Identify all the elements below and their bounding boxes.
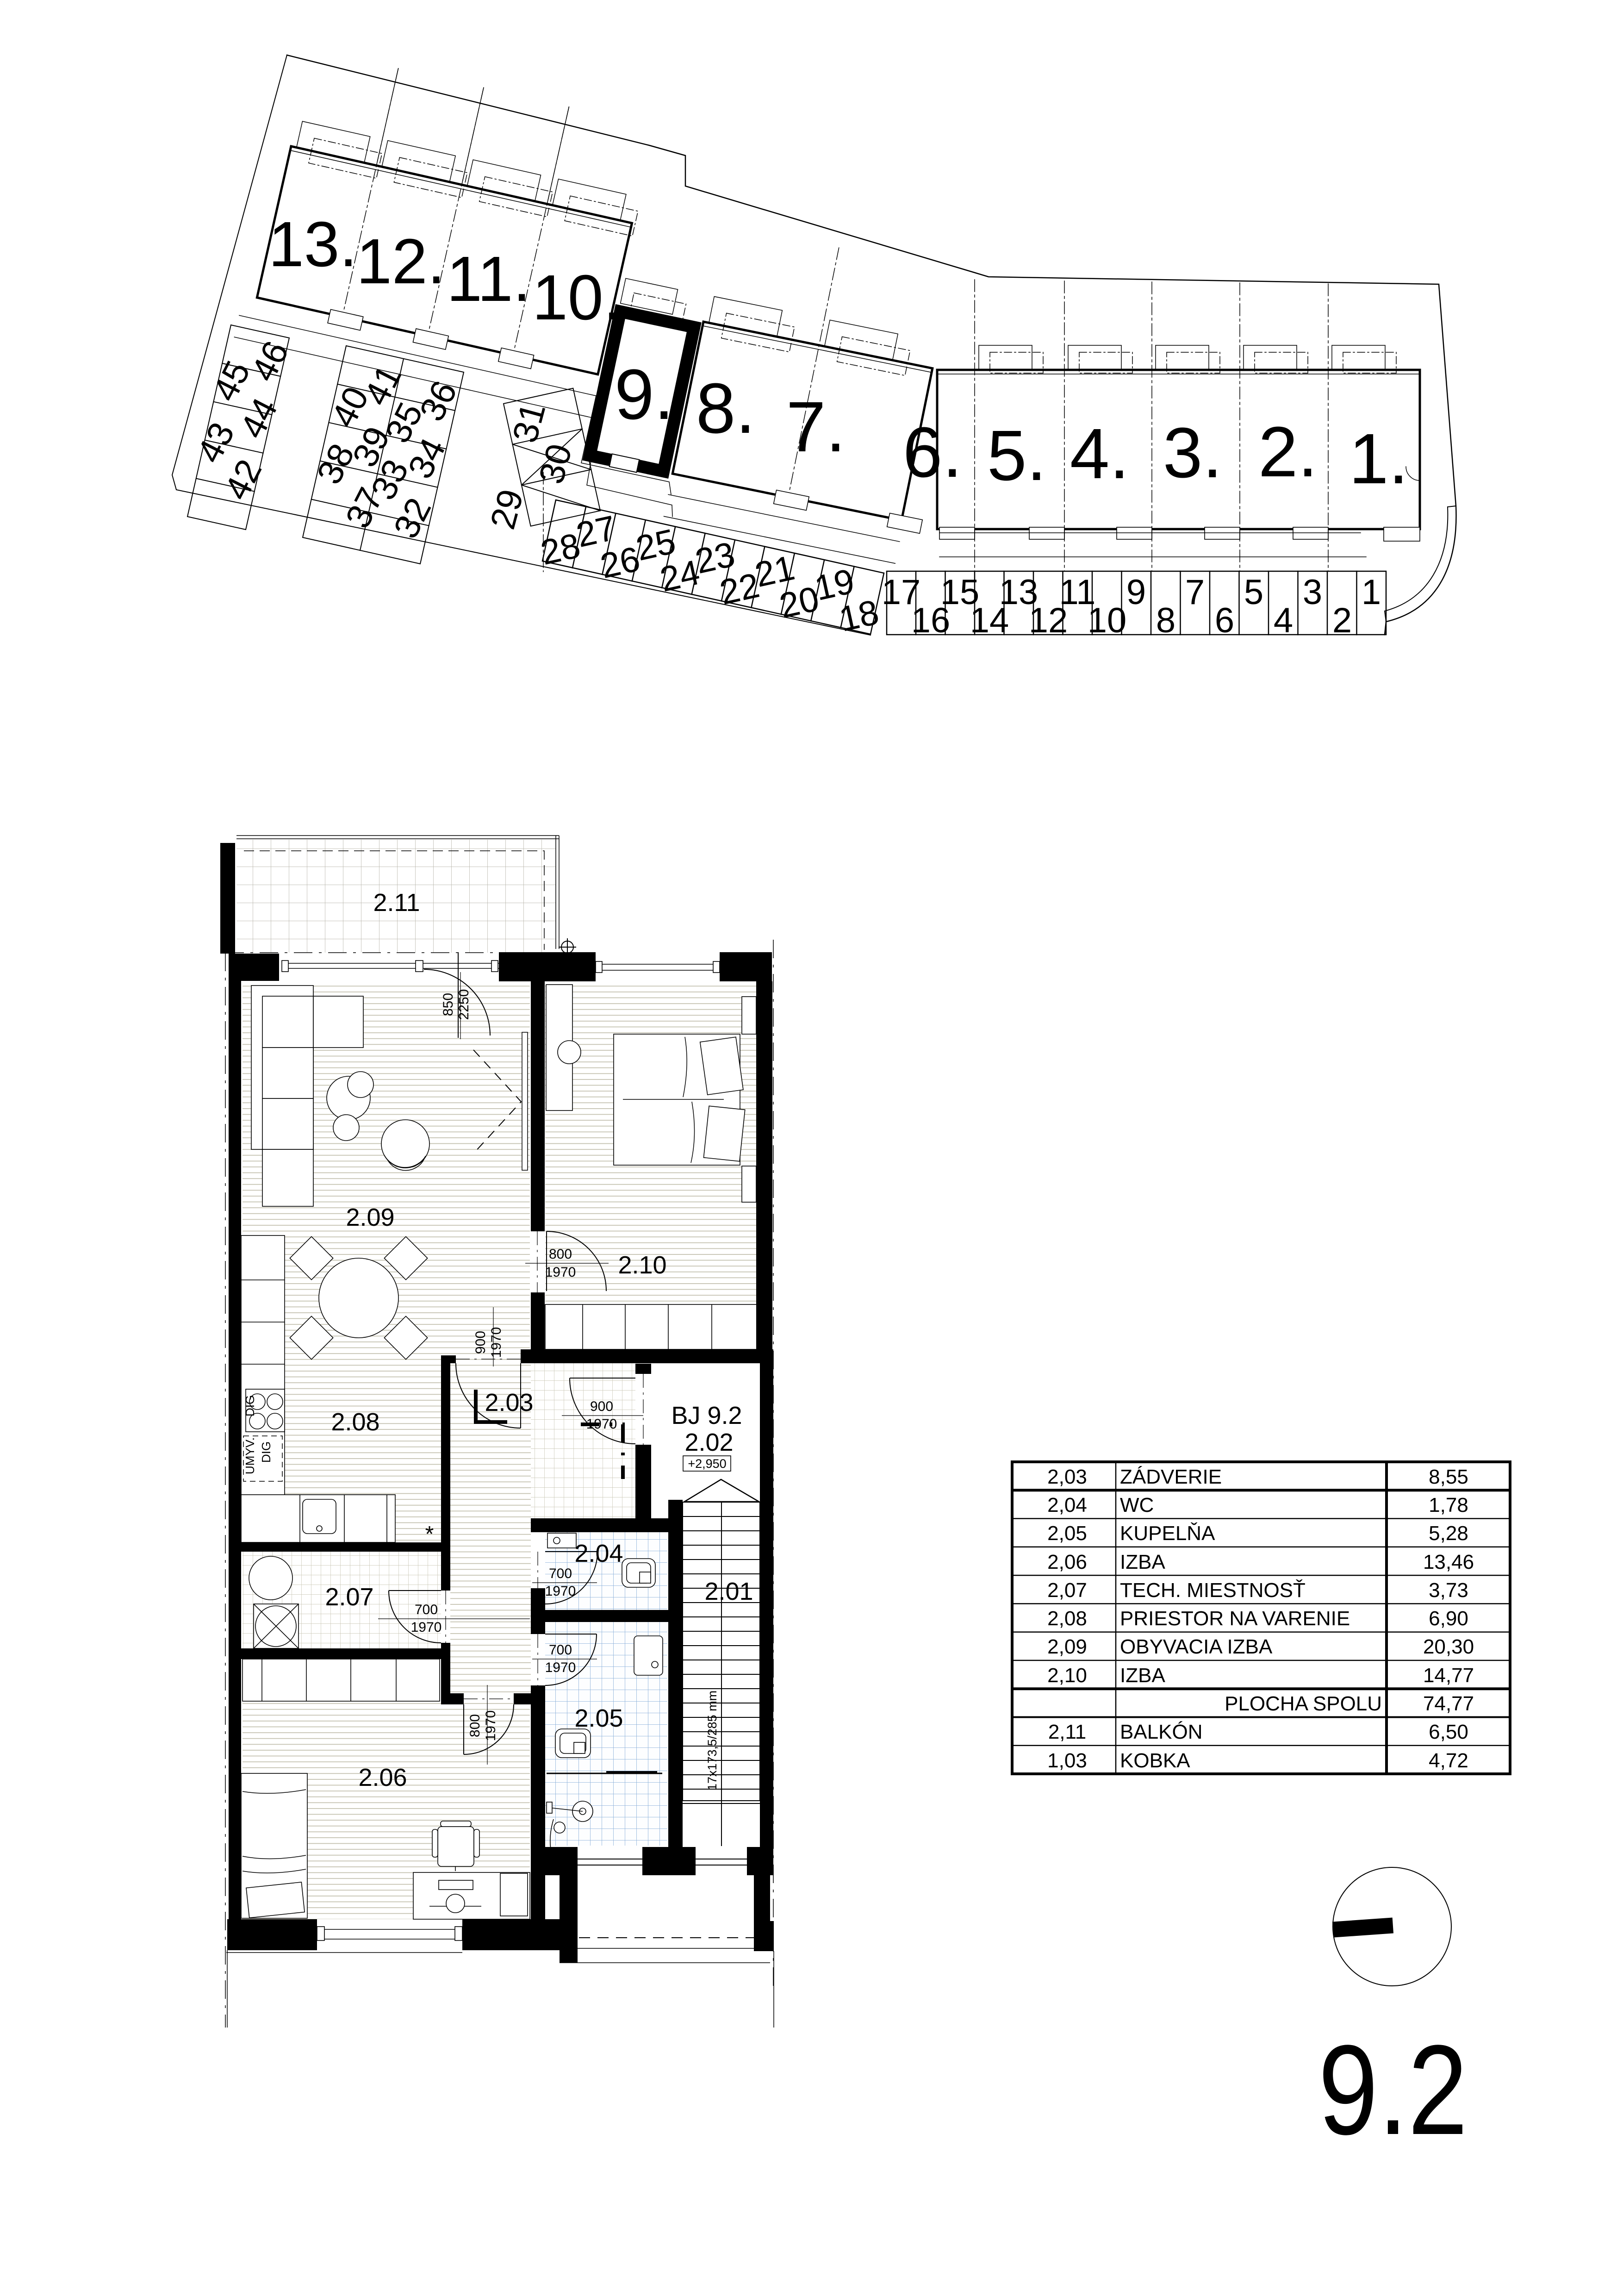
svg-text:1,03: 1,03 <box>1047 1749 1087 1772</box>
svg-text:12.: 12. <box>356 226 445 297</box>
svg-text:2.04: 2.04 <box>574 1540 623 1567</box>
svg-text:8: 8 <box>1156 601 1175 640</box>
svg-text:2.11: 2.11 <box>373 889 420 917</box>
svg-text:700: 700 <box>415 1602 438 1617</box>
svg-text:17: 17 <box>882 573 921 612</box>
svg-text:TECH. MIESTNOSŤ: TECH. MIESTNOSŤ <box>1120 1579 1306 1602</box>
svg-text:850: 850 <box>441 993 456 1016</box>
svg-text:2.07: 2.07 <box>325 1583 373 1611</box>
svg-text:2.08: 2.08 <box>331 1408 379 1436</box>
svg-text:2.05: 2.05 <box>574 1704 623 1732</box>
svg-text:1970: 1970 <box>489 1327 504 1358</box>
svg-text:2,08: 2,08 <box>1047 1607 1087 1630</box>
svg-text:1970: 1970 <box>545 1584 576 1599</box>
svg-text:2250: 2250 <box>456 989 472 1020</box>
svg-text:2,04: 2,04 <box>1047 1494 1087 1516</box>
svg-text:11.: 11. <box>447 243 531 315</box>
svg-text:20,30: 20,30 <box>1423 1635 1474 1658</box>
svg-text:2,06: 2,06 <box>1047 1551 1087 1573</box>
svg-text:4: 4 <box>1274 601 1293 640</box>
svg-text:3,73: 3,73 <box>1429 1579 1468 1602</box>
svg-text:2.06: 2.06 <box>358 1764 407 1791</box>
svg-text:2,10: 2,10 <box>1047 1664 1087 1687</box>
svg-text:14,77: 14,77 <box>1423 1664 1474 1687</box>
svg-text:2,09: 2,09 <box>1047 1635 1087 1658</box>
svg-text:10.: 10. <box>532 262 621 333</box>
svg-text:6,90: 6,90 <box>1429 1607 1468 1630</box>
svg-text:1970: 1970 <box>483 1710 498 1741</box>
svg-text:5.: 5. <box>987 416 1046 495</box>
svg-text:OBYVACIA IZBA: OBYVACIA IZBA <box>1120 1635 1273 1658</box>
svg-text:ZÁDVERIE: ZÁDVERIE <box>1120 1466 1222 1488</box>
svg-text:5,28: 5,28 <box>1429 1522 1468 1545</box>
svg-text:2,07: 2,07 <box>1047 1579 1087 1602</box>
svg-text:800: 800 <box>467 1714 483 1737</box>
svg-text:9: 9 <box>1126 573 1146 612</box>
svg-text:2.01: 2.01 <box>704 1578 753 1605</box>
svg-text:IZBA: IZBA <box>1120 1664 1165 1687</box>
svg-text:DIG: DIG <box>243 1395 257 1416</box>
svg-text:KUPELŇA: KUPELŇA <box>1120 1522 1215 1545</box>
svg-text:6,50: 6,50 <box>1429 1721 1468 1743</box>
svg-text:17x173,5/285 mm: 17x173,5/285 mm <box>705 1691 719 1791</box>
svg-text:4.: 4. <box>1070 414 1129 493</box>
svg-text:BJ 9.2: BJ 9.2 <box>671 1402 742 1429</box>
svg-text:+2,950: +2,950 <box>688 1457 726 1471</box>
svg-text:3.: 3. <box>1163 413 1222 493</box>
svg-text:2,03: 2,03 <box>1047 1466 1087 1488</box>
svg-text:2,11: 2,11 <box>1048 1721 1086 1743</box>
svg-text:1: 1 <box>1362 573 1381 612</box>
svg-text:2,05: 2,05 <box>1047 1522 1087 1545</box>
svg-text:1,78: 1,78 <box>1429 1494 1468 1516</box>
svg-text:6.: 6. <box>903 412 962 492</box>
svg-text:900: 900 <box>473 1331 488 1354</box>
svg-text:2.10: 2.10 <box>618 1251 666 1279</box>
svg-text:2.09: 2.09 <box>346 1204 394 1231</box>
svg-text:KOBKA: KOBKA <box>1120 1749 1190 1772</box>
svg-text:8.: 8. <box>696 368 755 448</box>
svg-text:1970: 1970 <box>411 1620 442 1635</box>
svg-text:9.2: 9.2 <box>1318 2019 1468 2161</box>
svg-text:13.: 13. <box>268 209 357 280</box>
svg-text:BALKÓN: BALKÓN <box>1120 1721 1203 1743</box>
svg-text:4,72: 4,72 <box>1429 1749 1468 1772</box>
svg-text:IZBA: IZBA <box>1120 1551 1165 1573</box>
svg-text:700: 700 <box>549 1642 572 1658</box>
svg-text:2: 2 <box>1332 601 1352 640</box>
svg-text:700: 700 <box>549 1566 572 1581</box>
svg-text:7.: 7. <box>786 387 846 467</box>
svg-text:13,46: 13,46 <box>1423 1551 1474 1573</box>
svg-text:1970: 1970 <box>545 1265 576 1280</box>
svg-text:800: 800 <box>549 1247 572 1262</box>
svg-text:28: 28 <box>537 526 584 573</box>
svg-text:6: 6 <box>1215 601 1234 640</box>
svg-text:1970: 1970 <box>545 1660 576 1675</box>
svg-text:2.: 2. <box>1258 412 1318 492</box>
svg-text:2.03: 2.03 <box>485 1389 533 1416</box>
svg-text:1.: 1. <box>1349 419 1408 499</box>
svg-text:PLOCHA SPOLU: PLOCHA SPOLU <box>1225 1692 1382 1715</box>
svg-text:74,77: 74,77 <box>1423 1692 1474 1715</box>
svg-text:DIG: DIG <box>259 1441 273 1463</box>
svg-text:900: 900 <box>590 1399 613 1414</box>
svg-text:9.: 9. <box>615 355 674 434</box>
svg-text:WC: WC <box>1120 1494 1154 1516</box>
svg-text:PRIESTOR NA VARENIE: PRIESTOR NA VARENIE <box>1120 1607 1350 1630</box>
svg-text:8,55: 8,55 <box>1429 1466 1468 1488</box>
svg-text:UMYV.: UMYV. <box>243 1437 257 1474</box>
svg-text:5: 5 <box>1244 573 1263 612</box>
svg-text:2.02: 2.02 <box>684 1429 733 1456</box>
svg-text:7: 7 <box>1185 573 1205 612</box>
svg-text:3: 3 <box>1303 573 1322 612</box>
